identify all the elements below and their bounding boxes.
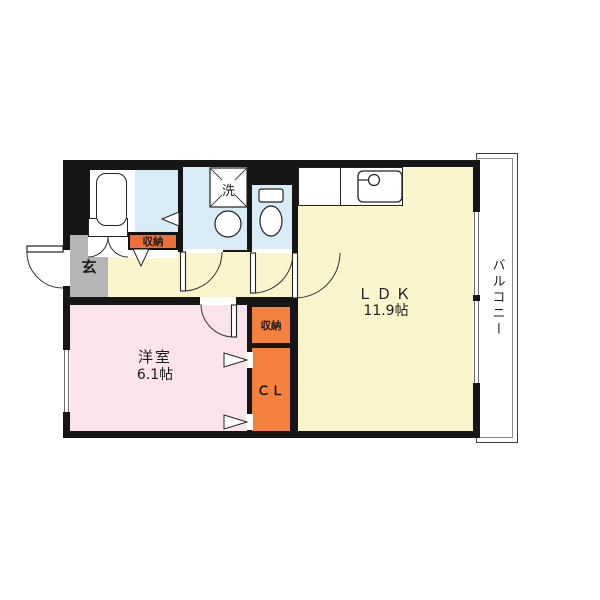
hall-storage-door — [128, 250, 178, 258]
floor-plan: バルコニー 玄 収納 収納 ＣＬ — [0, 0, 600, 600]
hall-storage-box: 収納 — [128, 233, 178, 250]
entrance-door-opening — [63, 250, 70, 286]
closet-box: ＣＬ — [252, 348, 290, 431]
bathroom-floor — [135, 170, 178, 232]
ldk-size-label: 11.9帖 — [316, 300, 456, 320]
entrance-area: 玄 — [70, 235, 108, 297]
counter-divider — [340, 168, 341, 205]
closet-label: ＣＬ — [257, 380, 285, 399]
bedroom-window — [63, 350, 70, 412]
balcony-area: バルコニー — [476, 153, 518, 443]
entrance-door — [27, 246, 63, 288]
mid-storage-label: 収納 — [261, 318, 282, 333]
hallway — [108, 252, 292, 297]
entrance-label: 玄 — [81, 256, 96, 277]
balcony-label: バルコニー — [488, 258, 507, 338]
kitchen-counter — [298, 167, 403, 206]
ldk-door-opening — [292, 253, 298, 298]
bathtub-icon — [96, 173, 127, 226]
toilet-room — [252, 185, 292, 250]
bedroom-size-label: 6.1帖 — [105, 364, 205, 384]
balcony-window-lower — [473, 301, 480, 383]
laundry-label: 洗 — [210, 180, 247, 199]
balcony-window-upper — [473, 212, 480, 295]
mid-storage-box: 収納 — [252, 307, 290, 343]
hall-storage-label: 収納 — [143, 234, 164, 249]
